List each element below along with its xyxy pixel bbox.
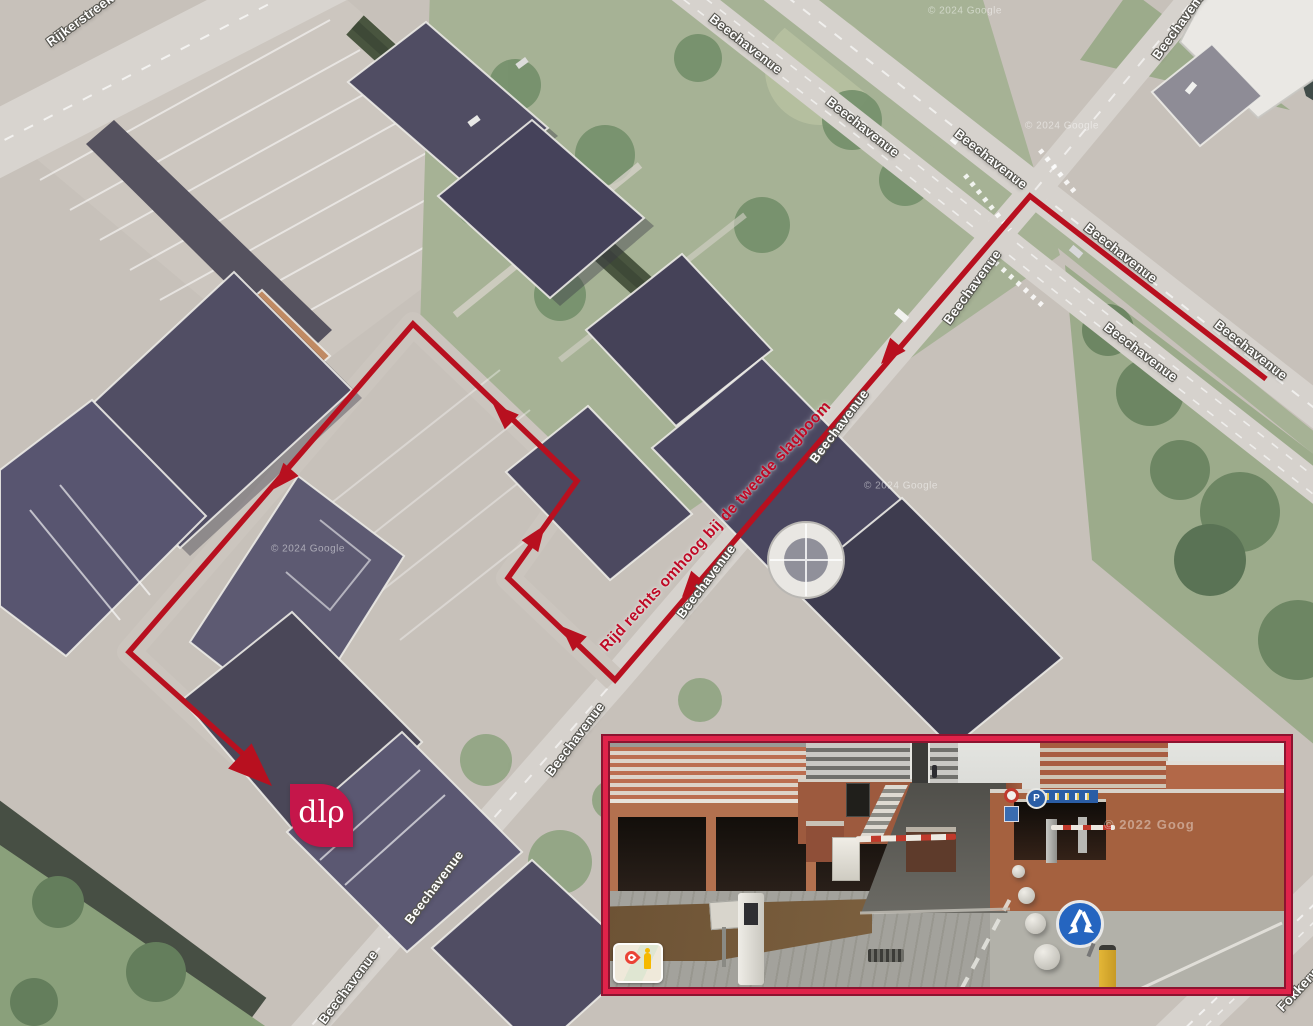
streetview-inset: P xyxy=(601,734,1293,996)
inset-frame: P xyxy=(603,736,1291,994)
dlp-logo-text: dlρ xyxy=(298,798,344,828)
road-markings xyxy=(610,743,1284,987)
map-watermark: © 2024 Google xyxy=(271,544,345,555)
yellow-bollard xyxy=(1099,945,1116,987)
sphere-bollard xyxy=(1034,944,1060,970)
pegman-icon xyxy=(644,953,651,969)
sphere-bollard xyxy=(1012,865,1025,878)
sphere-bollard xyxy=(1018,887,1035,904)
dlp-logo-marker: dlρ xyxy=(290,784,353,847)
photo-watermark: © 2022 Goog xyxy=(1104,817,1195,832)
route-map-flyer: RijkerstreekBeechavenueBeechavenueBeecha… xyxy=(0,0,1313,1026)
map-watermark: © 2024 Google xyxy=(864,481,938,492)
streetview-photo: P xyxy=(608,741,1286,989)
google-maps-badge-icon xyxy=(613,943,663,983)
sphere-bollard xyxy=(1025,913,1046,934)
map-watermark: © 2024 Google xyxy=(928,6,1002,17)
pass-either-side-sign-icon xyxy=(1056,900,1104,948)
mini-map xyxy=(615,945,661,981)
map-watermark: © 2024 Google xyxy=(1025,121,1099,132)
